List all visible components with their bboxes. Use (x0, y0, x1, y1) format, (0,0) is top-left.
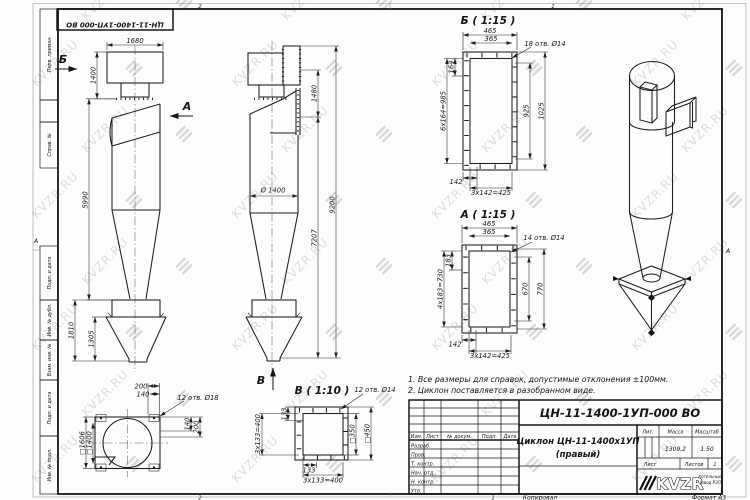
dim-label: 670 (522, 283, 530, 296)
strip-label: Взам. инв. № (47, 344, 53, 377)
drawing-canvas: 2 1 2 1 А А Копировал Формат А3 Перв. пр… (0, 0, 750, 500)
tb-row-label: Т. контр. (411, 462, 434, 468)
dim-label: Ø 1400 (260, 187, 286, 195)
tb-sheets-value: 1 (713, 462, 716, 468)
tb-name-line1: Циклон ЦН-11-1400х1УП (516, 437, 639, 447)
tb-logo-text: KVZR (656, 475, 704, 493)
zone-number: 2 (198, 4, 202, 10)
detail-b: Б ( 1:15 ) 465 365 18 отв. Ø14 164 6х164… (440, 15, 566, 197)
detail-title: Б ( 1:15 ) (461, 15, 516, 27)
tb-logo-sub1: Котельный (698, 474, 722, 479)
dim-label: 365 (485, 35, 498, 43)
dim-label: 142 (450, 178, 463, 186)
detail-v: В ( 1:10 ) 12 отв. Ø14 133 3х133=400 □35… (254, 385, 396, 485)
dim-label: 465 (483, 220, 496, 228)
dim-label: 200 (135, 383, 148, 391)
dim-label: 770 (537, 283, 545, 296)
dim-label: 1400 (90, 67, 98, 84)
holes-note: 18 отв. Ø14 (524, 40, 565, 48)
tb-sheet-label: Лист (643, 462, 658, 468)
left-attribute-strip: Перв. примен. Справ. № Подп. и дата Инв.… (40, 9, 58, 494)
view-top: 200 140 12 отв. Ø18 140 200 □1606 □1400 (79, 383, 220, 478)
dim-label: 3х142=425 (470, 352, 510, 360)
dim-label: 200 (193, 421, 201, 434)
tb-lit-label: Лит. (641, 430, 654, 436)
view-front: 1680 1400 5990 1810 1305 Б А (55, 37, 193, 372)
top-stamp: ЦН-11-1400-1УП-000 ВО (57, 9, 173, 30)
format-label: Формат А3 (692, 495, 726, 500)
tb-col-header: Дата (503, 434, 517, 440)
dim-label: 1680 (126, 37, 143, 45)
note-line: 2. Циклон поставляется в разобранном вид… (408, 386, 596, 395)
dim-label: 142 (449, 341, 462, 349)
zone-number: 2 (198, 496, 202, 500)
tb-row-label: Утв. (411, 489, 422, 495)
holes-note: 12 отв. Ø14 (354, 386, 395, 394)
note-line: 1. Все размеры для справок, допустимые о… (408, 375, 668, 384)
dim-label: 183 (445, 254, 453, 267)
tb-mass-label: Масса (668, 430, 684, 436)
dim-label: 140 (184, 418, 192, 431)
holes-note: 14 отв. Ø14 (523, 234, 564, 242)
dim-label: □450 (364, 424, 372, 443)
strip-label: Инв. № подл. (47, 448, 53, 481)
zone-number: 1 (491, 496, 495, 500)
notes: 1. Все размеры для справок, допустимые о… (408, 375, 668, 395)
tb-name-line2: (правый) (556, 450, 601, 460)
tb-row-label: Пров. (411, 453, 426, 459)
tb-col-header: Лист (425, 434, 440, 440)
view-arrow-letter: А (182, 100, 192, 113)
dim-label: 133 (281, 408, 289, 421)
view-arrow-letter: Б (59, 53, 67, 66)
dim-label: 3х133=400 (303, 477, 343, 485)
zone-letter: А (33, 238, 38, 245)
stamp-doc-number: ЦН-11-1400-1УП-000 ВО (66, 21, 164, 29)
tb-doc-number: ЦН-11-1400-1УП-000 ВО (540, 406, 701, 420)
tb-col-header: Изм. (411, 434, 423, 440)
tb-mass-value: 1309,2 (665, 446, 686, 453)
view-isometric (613, 62, 696, 337)
tb-col-header: № докум. (446, 434, 472, 440)
dim-label: 365 (483, 228, 496, 236)
detail-title: В ( 1:10 ) (295, 385, 350, 397)
dim-label: 1810 (68, 322, 76, 339)
dim-label: 9200 (329, 196, 337, 213)
kvzr-logo-icon (640, 476, 656, 490)
zone-letter: А (725, 248, 730, 255)
dim-label: 4х183=730 (437, 269, 445, 309)
dim-label: □350 (349, 424, 357, 443)
strip-label: Подп. и дата (47, 392, 53, 425)
dim-label: 465 (484, 27, 497, 35)
tb-row-label: Нач. отд. (411, 471, 435, 477)
view-side: Ø 1400 1480 7207 9200 (246, 42, 341, 390)
dim-label: 164 (448, 61, 456, 74)
dim-label: 3х142=425 (471, 189, 511, 197)
view-arrow-letter: В (257, 374, 265, 387)
detail-a: А ( 1:15 ) 465 365 14 отв. Ø14 183 4х183… (437, 209, 565, 360)
zone-number: 1 (551, 4, 555, 10)
tb-scale-label: Масштаб (695, 430, 719, 436)
dim-label: 1025 (538, 102, 546, 119)
dim-label: 1305 (88, 330, 96, 347)
dim-label: 133 (303, 467, 316, 475)
tb-scale-value: 1:50 (700, 446, 714, 453)
holes-note: 12 отв. Ø18 (177, 394, 219, 402)
strip-label: Инв. № дубл. (47, 304, 53, 337)
strip-label: Перв. примен. (47, 36, 53, 72)
strip-label: Подп. и дата (47, 257, 53, 290)
drawing-sheet: ≡KVZR.RU≡KVZR.RU≡KVZR.RU≡KVZR.RUKVZR.RU≡… (0, 0, 750, 500)
tb-sheets-label: Листов (684, 462, 704, 468)
dim-label: 1480 (311, 85, 319, 102)
dim-label: 140 (137, 391, 150, 399)
tb-logo-sub2: завод РЭП (699, 480, 721, 485)
strip-label: Справ. № (47, 133, 53, 156)
copy-label: Копировал (523, 495, 557, 500)
dim-label: 7207 (311, 229, 319, 247)
tb-col-header: Подп. (482, 434, 497, 440)
dim-label: 6х164=985 (440, 91, 448, 131)
dim-label: 5990 (82, 191, 90, 208)
dim-label: 3х133=400 (254, 414, 262, 454)
tb-row-label: Н. контр. (411, 480, 435, 486)
dim-label: 925 (523, 105, 531, 118)
tb-row-label: Разраб. (411, 444, 431, 450)
title-block: Изм. Лист № докум. Подп. Дата Разраб. Пр… (409, 400, 722, 495)
dim-label: □1400 (86, 431, 94, 455)
